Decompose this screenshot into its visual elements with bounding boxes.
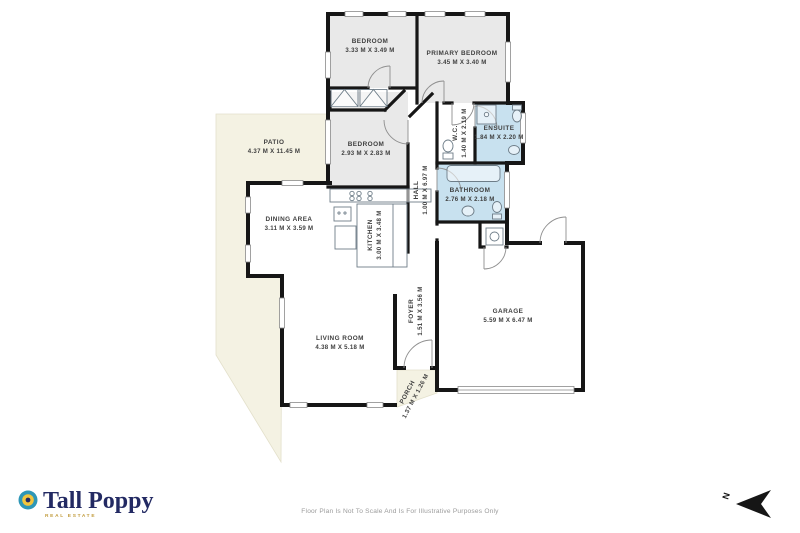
disclaimer-text: Floor Plan Is Not To Scale And Is For Il… — [301, 508, 499, 515]
floor-plan-page: BEDROOM 3.33 M X 3.49 M PRIMARY BEDROOM … — [0, 0, 800, 533]
brand-tagline: REAL ESTATE — [45, 513, 96, 519]
patio-label: PATIO — [264, 139, 285, 146]
primary-bedroom-label: PRIMARY BEDROOM — [426, 50, 497, 57]
patio-dims: 4.37 M X 11.45 M — [248, 148, 301, 155]
bedroom-2-label: BEDROOM — [348, 141, 385, 148]
ensuite-dims: 1.84 M X 2.20 M — [474, 134, 523, 141]
kitchen-dims: 3.00 M X 3.48 M — [376, 210, 383, 259]
garage-dims: 5.59 M X 6.47 M — [483, 317, 532, 324]
kitchen-label: KITCHEN — [367, 219, 374, 251]
bedroom-1-label: BEDROOM — [352, 38, 389, 45]
living-room-label: LIVING ROOM — [316, 335, 364, 342]
garage-label: GARAGE — [493, 308, 524, 315]
patio-area — [216, 114, 329, 462]
living-room-dims: 4.38 M X 5.18 M — [315, 344, 364, 351]
hall-label: HALL — [413, 181, 420, 200]
bathroom-label: BATHROOM — [450, 187, 491, 194]
bedroom-2-dims: 2.93 M X 2.83 M — [341, 150, 390, 157]
wc-label: W.C. — [452, 125, 459, 141]
foyer-label: FOYER — [408, 299, 415, 323]
north-label: N — [720, 491, 732, 500]
wc-fixtures — [443, 140, 453, 159]
ensuite-label: ENSUITE — [484, 125, 515, 132]
dining-area-dims: 3.11 M X 3.59 M — [265, 225, 314, 232]
brand-logo: Tall Poppy REAL ESTATE — [19, 488, 154, 519]
bathroom-dims: 2.76 M X 2.18 M — [445, 196, 494, 203]
brand-name: Tall Poppy — [43, 488, 154, 514]
north-arrow-icon — [736, 490, 771, 518]
dining-area-label: DINING AREA — [266, 216, 313, 223]
foyer-dims: 1.51 M X 3.56 M — [417, 286, 424, 335]
primary-bedroom-dims: 3.45 M X 3.40 M — [437, 59, 486, 66]
bedroom-1-dims: 3.33 M X 3.49 M — [345, 47, 394, 54]
north-arrow: N — [720, 490, 771, 518]
floor-plan-canvas: BEDROOM 3.33 M X 3.49 M PRIMARY BEDROOM … — [0, 0, 800, 533]
laundry-sink-icon — [486, 228, 503, 245]
hall-dims: 1.00 M X 6.97 M — [422, 165, 429, 214]
wc-dims: 1.40 M X 2.19 M — [461, 108, 468, 157]
